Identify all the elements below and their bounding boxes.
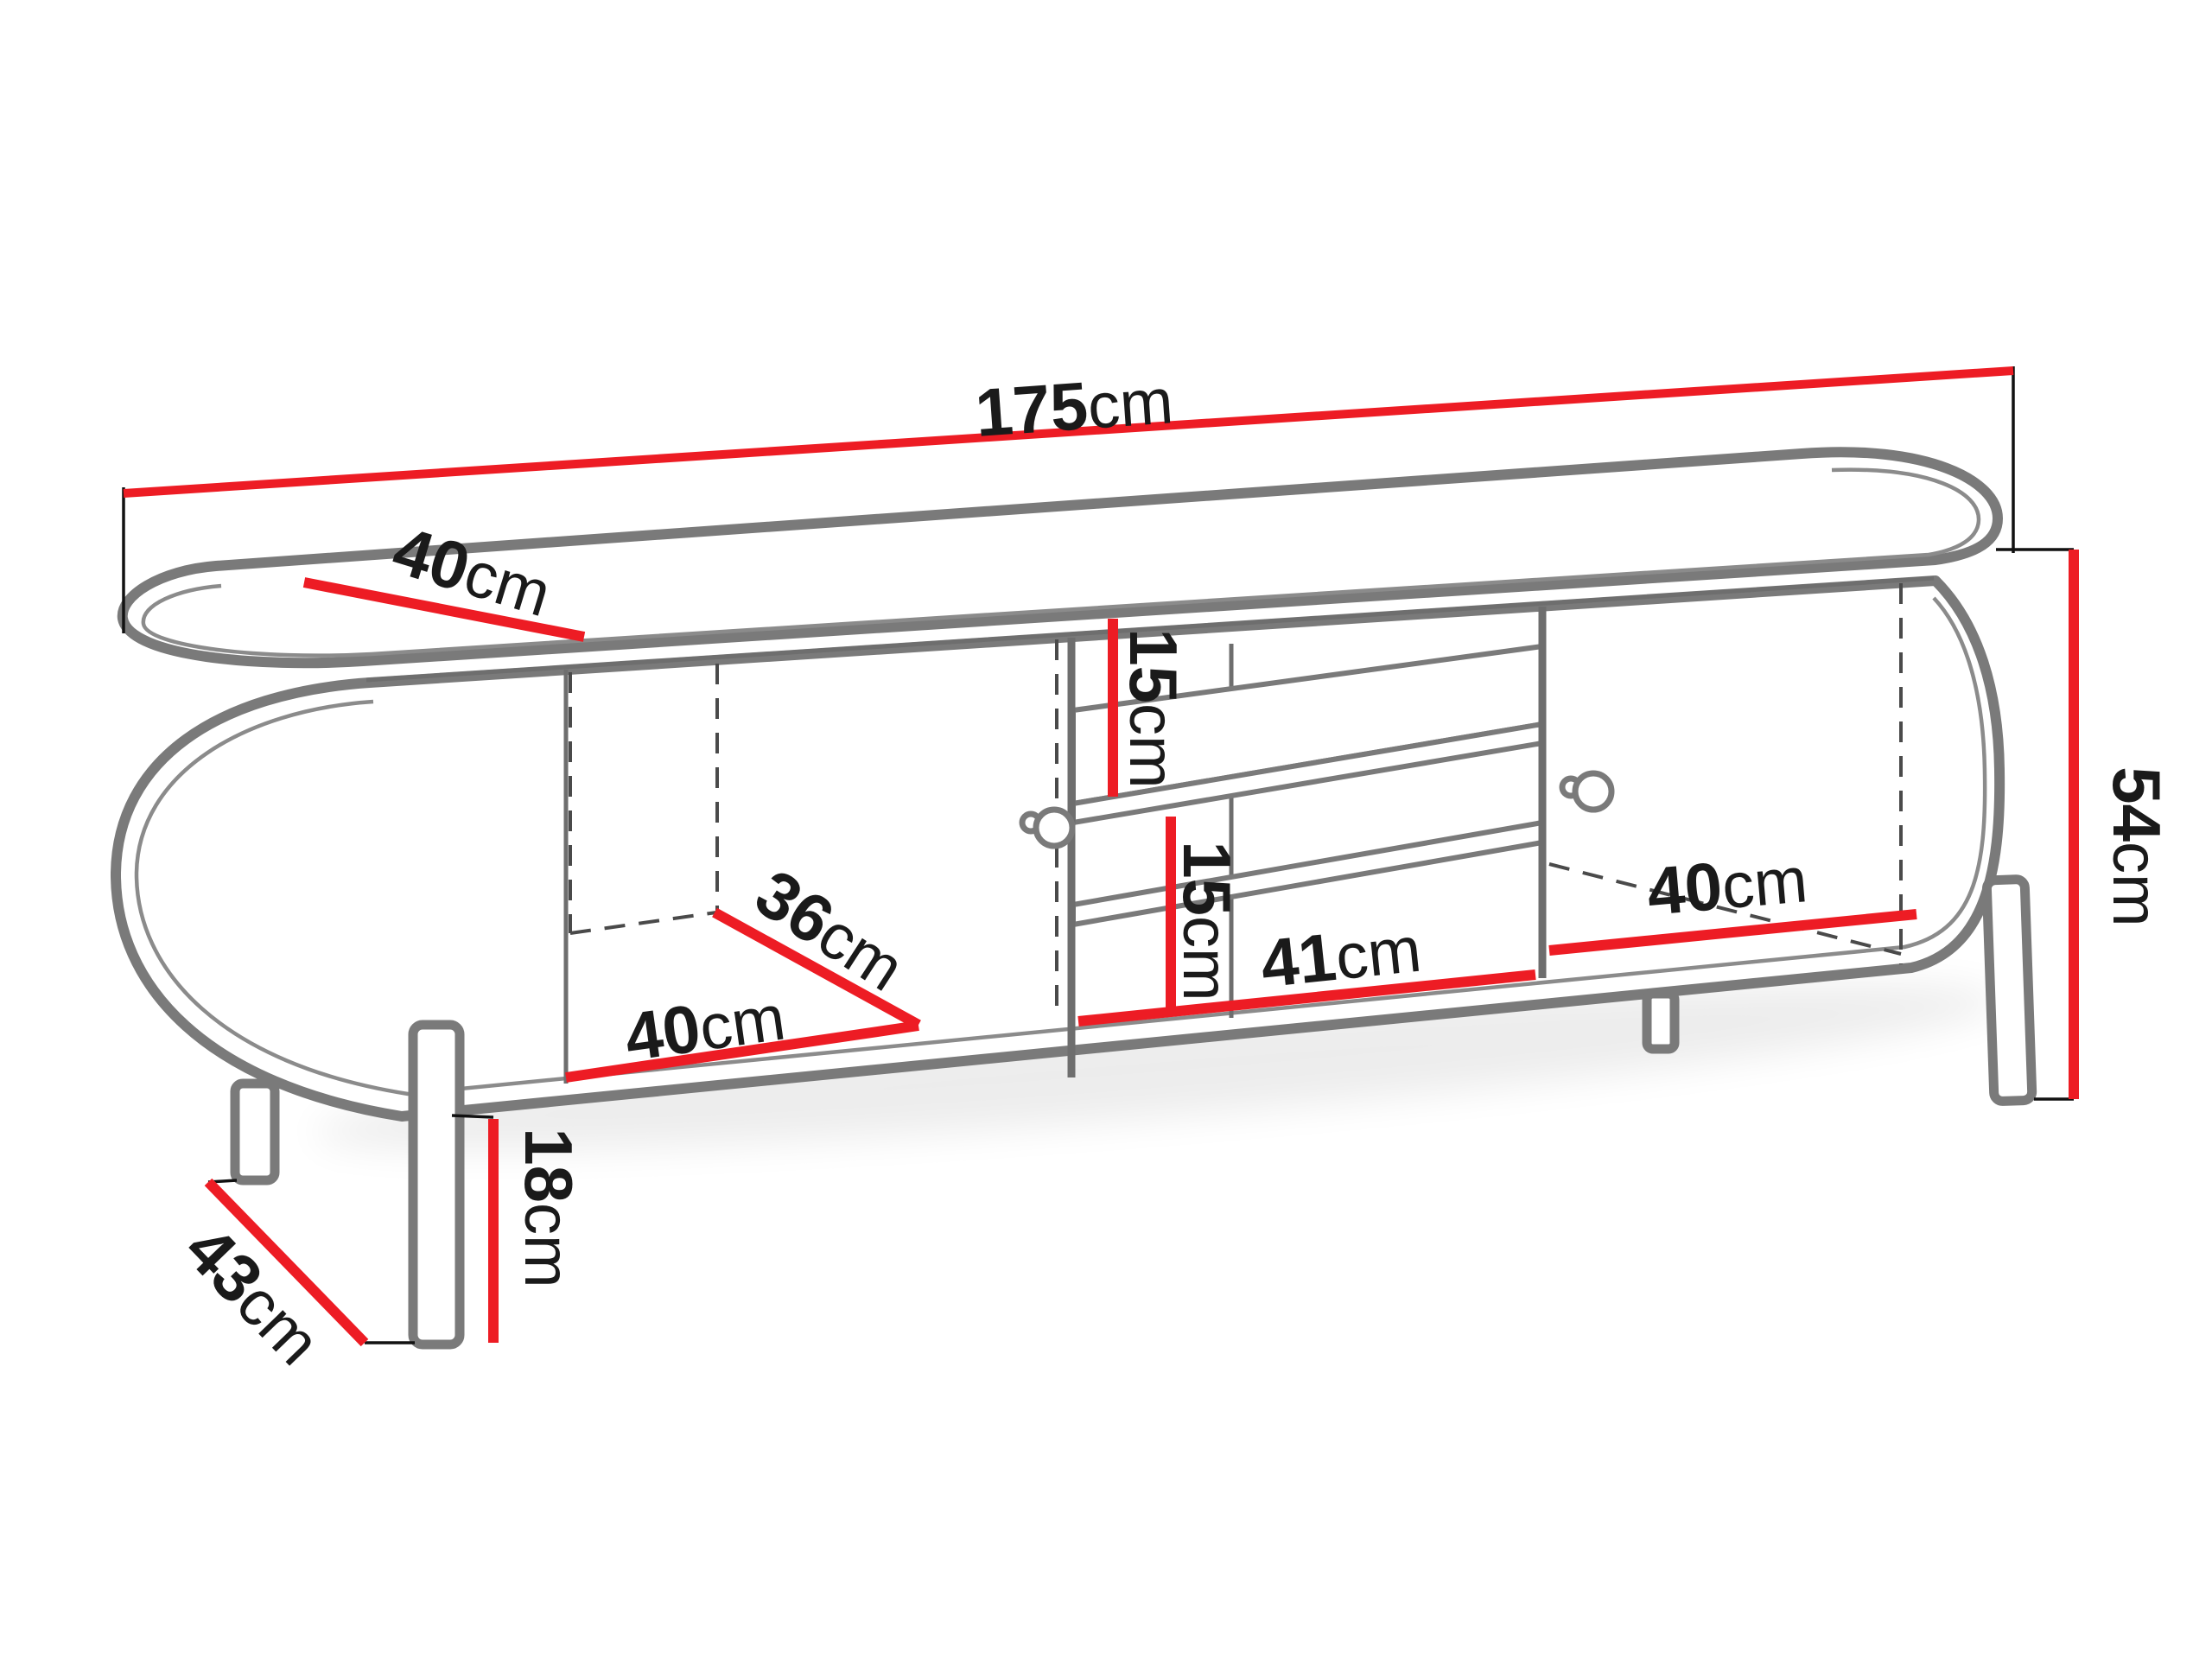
front-right-leg <box>1986 879 2032 1101</box>
tv-stand-diagram: 175cm 40cm 54cm 15cm 15cm 40cm 36cm 41cm… <box>0 0 2212 1659</box>
leg-height-tick <box>452 1116 493 1117</box>
right-compartment-width-label: 40cm <box>1644 840 1810 930</box>
front-left-leg <box>413 1025 460 1344</box>
overall-width-label: 175cm <box>973 361 1175 451</box>
overall-height-label: 54cm <box>2099 766 2175 926</box>
leg-height-label: 18cm <box>511 1128 587 1287</box>
upper-shelf-gap-label: 15cm <box>1116 628 1192 788</box>
lower-shelf-gap-label: 15cm <box>1169 841 1245 1001</box>
rear-right-leg <box>1647 994 1675 1049</box>
rear-left-leg <box>235 1084 275 1180</box>
dimension-diagram-page: 175cm 40cm 54cm 15cm 15cm 40cm 36cm 41cm… <box>0 0 2212 1659</box>
